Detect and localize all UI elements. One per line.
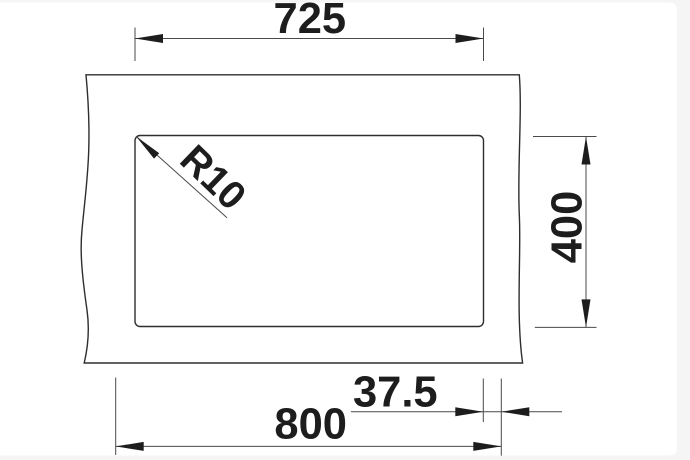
svg-text:800: 800 bbox=[274, 401, 347, 449]
svg-text:400: 400 bbox=[544, 191, 592, 264]
svg-text:725: 725 bbox=[274, 0, 347, 43]
svg-text:37.5: 37.5 bbox=[353, 369, 438, 417]
